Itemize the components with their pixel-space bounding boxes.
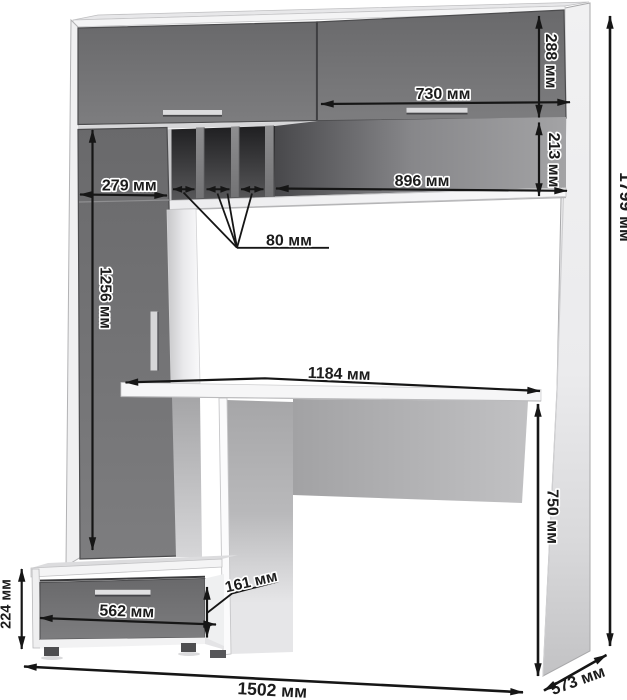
svg-text:1799 мм: 1799 мм	[616, 172, 627, 242]
svg-text:750 мм: 750 мм	[544, 489, 561, 544]
svg-text:1184 мм: 1184 мм	[307, 365, 370, 384]
svg-text:1256 мм: 1256 мм	[97, 267, 114, 329]
svg-text:730 мм: 730 мм	[416, 86, 471, 103]
svg-text:562 мм: 562 мм	[99, 603, 154, 622]
svg-text:288 мм: 288 мм	[542, 34, 559, 89]
svg-text:213 мм: 213 мм	[545, 133, 562, 188]
svg-text:80 мм: 80 мм	[266, 233, 312, 250]
svg-text:1502 мм: 1502 мм	[237, 678, 308, 700]
svg-text:279 мм: 279 мм	[102, 178, 157, 195]
svg-text:224 мм: 224 мм	[0, 579, 15, 629]
svg-text:896 мм: 896 мм	[395, 173, 450, 190]
